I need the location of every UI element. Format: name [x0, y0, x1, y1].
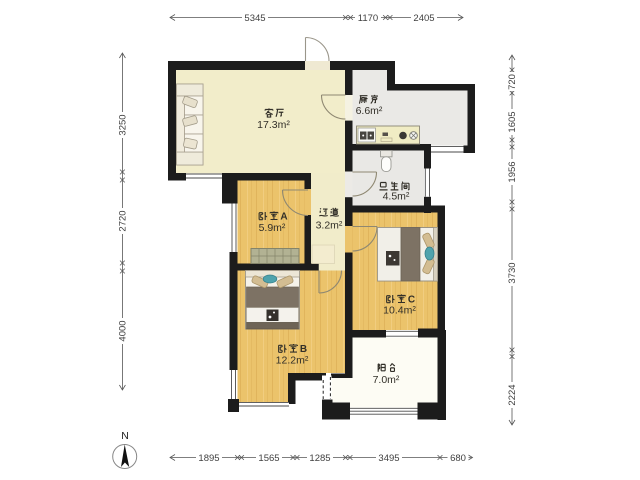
- svg-text:1565: 1565: [258, 453, 279, 464]
- svg-text:3730: 3730: [507, 262, 518, 283]
- svg-text:17.3m²: 17.3m²: [257, 119, 290, 131]
- svg-text:N: N: [121, 430, 129, 442]
- svg-text:A: A: [280, 212, 287, 223]
- svg-text:2720: 2720: [118, 210, 129, 231]
- svg-text:1605: 1605: [507, 111, 518, 132]
- svg-text:680: 680: [450, 453, 466, 464]
- svg-text:3495: 3495: [378, 453, 399, 464]
- svg-text:1956: 1956: [507, 161, 518, 182]
- svg-text:7.0m²: 7.0m²: [373, 374, 400, 386]
- svg-text:720: 720: [507, 74, 518, 90]
- svg-text:4.5m²: 4.5m²: [383, 191, 410, 203]
- svg-text:3.2m²: 3.2m²: [316, 220, 343, 232]
- svg-text:2224: 2224: [507, 384, 518, 405]
- svg-text:5345: 5345: [244, 13, 265, 24]
- svg-text:3250: 3250: [118, 114, 129, 135]
- svg-text:1895: 1895: [198, 453, 219, 464]
- svg-text:12.2m²: 12.2m²: [276, 354, 309, 366]
- svg-text:1285: 1285: [309, 453, 330, 464]
- svg-text:1170: 1170: [358, 13, 378, 24]
- svg-text:6.6m²: 6.6m²: [356, 105, 383, 117]
- svg-text:5.9m²: 5.9m²: [259, 222, 286, 234]
- svg-text:2405: 2405: [413, 13, 434, 24]
- svg-text:4000: 4000: [118, 320, 129, 341]
- svg-text:10.4m²: 10.4m²: [383, 305, 416, 317]
